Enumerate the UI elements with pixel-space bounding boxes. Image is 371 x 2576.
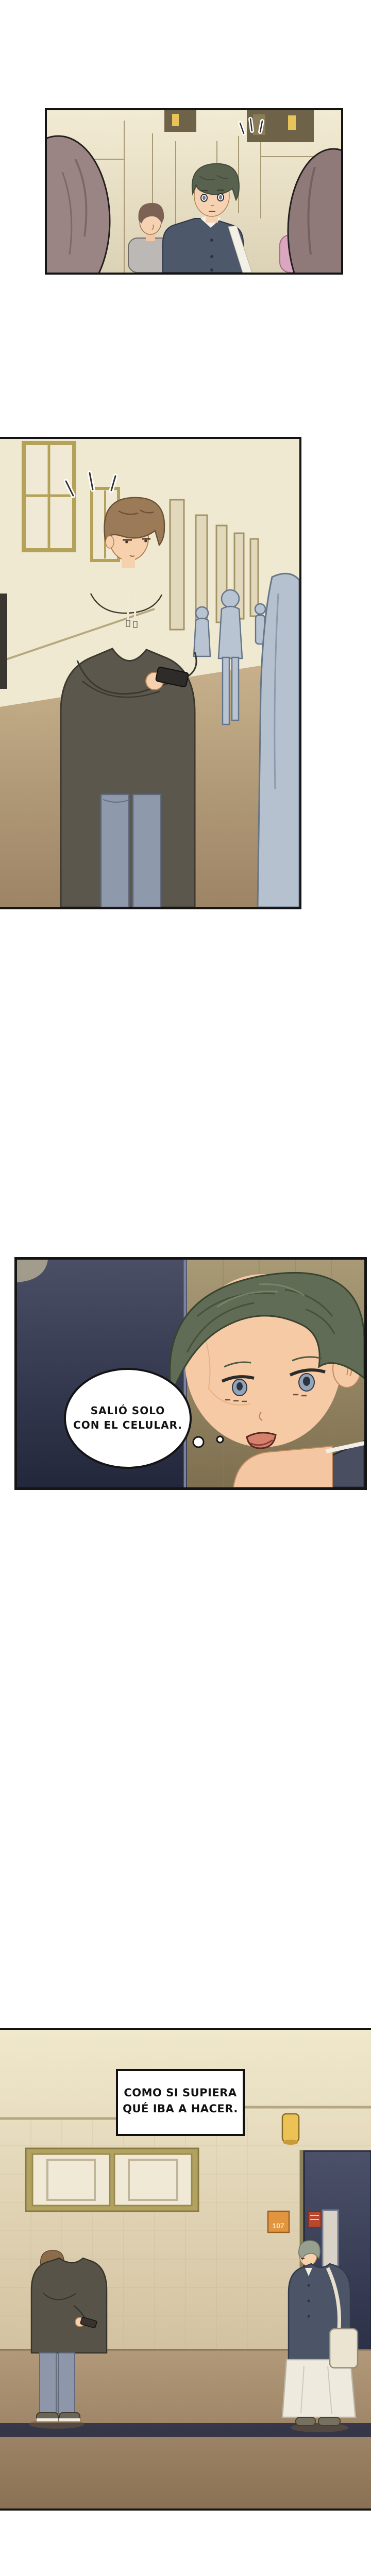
webtoon-page: SALIÓ SOLO CON EL CELULAR. [0, 0, 371, 2576]
comic-panel-1 [45, 108, 343, 275]
narration-caption: COMO SI SUPIERA QUÉ IBA A HACER. [116, 2069, 245, 2136]
panel3-scene: SALIÓ SOLO CON EL CELULAR. [17, 1260, 364, 1487]
bubble-text-line1: SALIÓ SOLO [91, 1404, 165, 1417]
panel1-scene [47, 110, 341, 273]
bubble-text-line2: CON EL CELULAR. [73, 1419, 182, 1431]
wall-lamp [282, 2114, 299, 2145]
comic-panel-3: SALIÓ SOLO CON EL CELULAR. [14, 1257, 367, 1490]
caption-line2: QUÉ IBA A HACER. [118, 2101, 243, 2117]
caption-line1: COMO SI SUPIERA [118, 2085, 243, 2101]
window [26, 2148, 198, 2211]
comic-panel-2 [0, 437, 301, 909]
room-number-sign: 107 [272, 2222, 284, 2230]
panel2-scene [0, 439, 299, 907]
